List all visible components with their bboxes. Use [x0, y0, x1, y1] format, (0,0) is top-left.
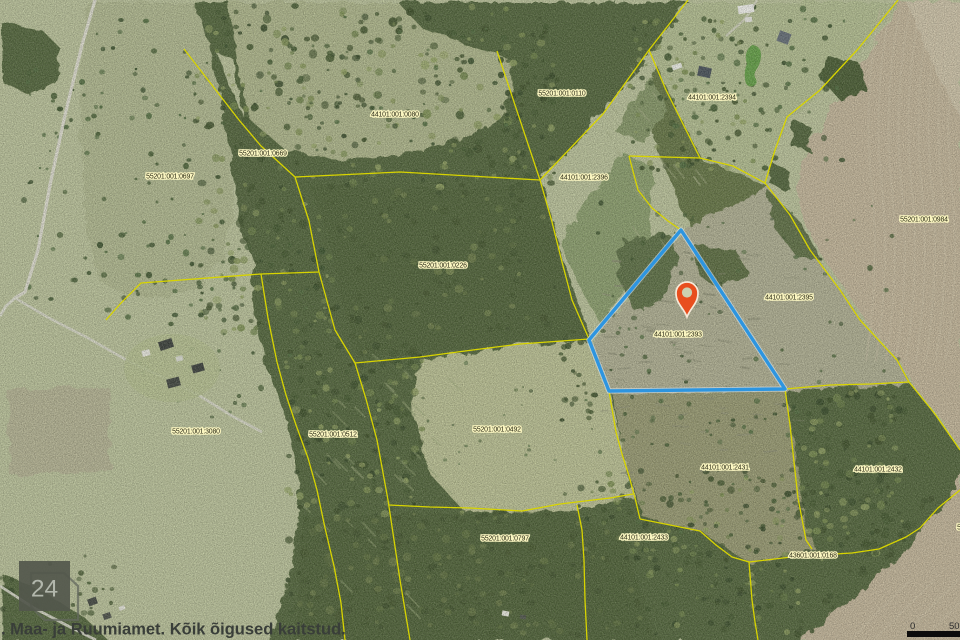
svg-text:55201:001:0492: 55201:001:0492 — [473, 427, 521, 434]
svg-text:24: 24 — [31, 576, 58, 603]
svg-text:55201:001:0512: 55201:001:0512 — [309, 432, 357, 439]
svg-text:44101:001:2433: 44101:001:2433 — [620, 535, 668, 542]
svg-text:44101:001:2393: 44101:001:2393 — [654, 332, 702, 339]
svg-text:55201:001:3080: 55201:001:3080 — [172, 429, 220, 436]
svg-text:55201:001:0110: 55201:001:0110 — [538, 91, 586, 98]
svg-text:44101:001:2396: 44101:001:2396 — [560, 175, 608, 182]
svg-text:55201:001:0669: 55201:001:0669 — [239, 151, 287, 158]
svg-text:44101:001:2394: 44101:001:2394 — [688, 95, 736, 102]
svg-text:. Maa- ja Ruumiamet. Kõik õigu: . Maa- ja Ruumiamet. Kõik õigused kaitst… — [1, 621, 346, 639]
svg-text:44101:001:2431: 44101:001:2431 — [701, 465, 749, 472]
svg-text:50: 50 — [949, 621, 960, 632]
svg-text:44101:001:2395: 44101:001:2395 — [765, 295, 813, 302]
svg-text:0: 0 — [910, 621, 915, 632]
svg-text:55201:001:0697: 55201:001:0697 — [146, 174, 194, 181]
svg-text:55201:001:0797: 55201:001:0797 — [481, 536, 529, 543]
svg-text:44101:001:0080: 44101:001:0080 — [371, 112, 419, 119]
svg-text:44101:001:2432: 44101:001:2432 — [854, 467, 902, 474]
svg-text:43601:001:0168: 43601:001:0168 — [789, 553, 837, 560]
svg-text:55201:001:0984: 55201:001:0984 — [900, 217, 948, 224]
svg-text:55201:001:0226: 55201:001:0226 — [419, 263, 467, 270]
